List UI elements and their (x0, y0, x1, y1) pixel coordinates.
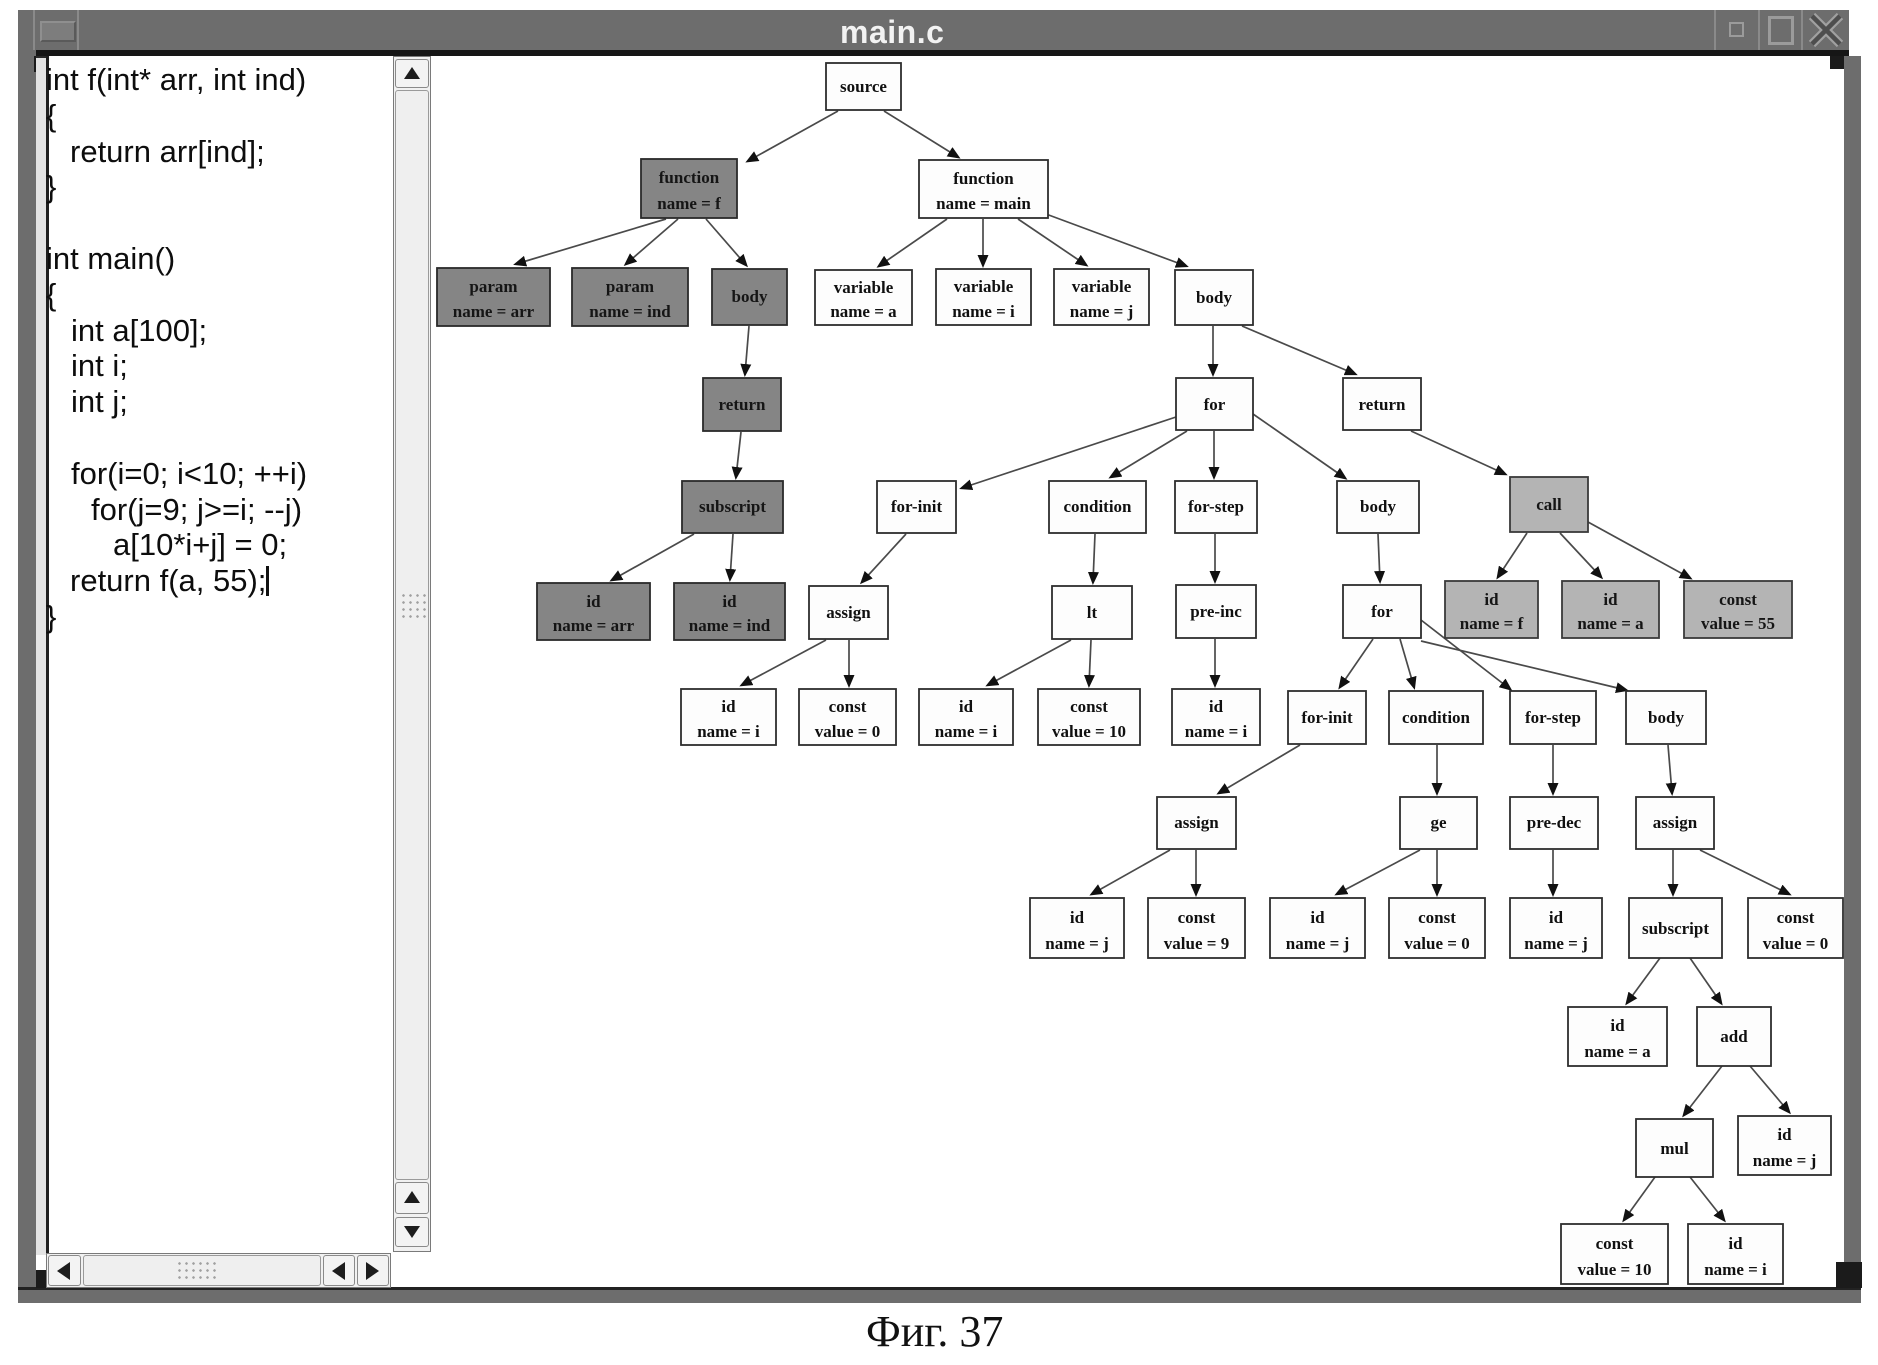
svg-text:id: id (1728, 1234, 1743, 1253)
svg-text:id: id (1484, 590, 1499, 609)
svg-text:id: id (721, 697, 736, 716)
svg-text:condition: condition (1402, 708, 1471, 727)
svg-text:name = main: name = main (936, 194, 1031, 213)
svg-text:name = i: name = i (952, 302, 1015, 321)
svg-text:const: const (1178, 908, 1216, 927)
svg-text:const: const (1719, 590, 1757, 609)
svg-text:value = 0: value = 0 (1763, 934, 1828, 953)
svg-text:const: const (1777, 908, 1815, 927)
svg-text:add: add (1720, 1027, 1748, 1046)
svg-text:name = ind: name = ind (589, 302, 671, 321)
svg-text:name = i: name = i (697, 722, 760, 741)
svg-text:name = j: name = j (1524, 934, 1588, 953)
svg-text:body: body (1648, 708, 1684, 727)
svg-text:id: id (959, 697, 974, 716)
svg-text:body: body (732, 287, 768, 306)
svg-text:name = a: name = a (830, 302, 897, 321)
svg-text:name = i: name = i (1704, 1260, 1767, 1279)
svg-text:id: id (1310, 908, 1325, 927)
svg-text:variable: variable (954, 277, 1014, 296)
svg-text:name = j: name = j (1286, 934, 1350, 953)
svg-text:value = 0: value = 0 (815, 722, 880, 741)
svg-text:const: const (1418, 908, 1456, 927)
svg-text:id: id (1603, 590, 1618, 609)
svg-text:for-step: for-step (1188, 497, 1244, 516)
svg-text:mul: mul (1660, 1139, 1689, 1158)
svg-text:name = ind: name = ind (689, 616, 771, 635)
svg-text:pre-dec: pre-dec (1527, 813, 1582, 832)
svg-text:id: id (722, 592, 737, 611)
svg-text:id: id (1549, 908, 1564, 927)
svg-text:name = arr: name = arr (453, 302, 535, 321)
svg-text:const: const (1596, 1234, 1634, 1253)
svg-text:const: const (829, 697, 867, 716)
svg-text:for-init: for-init (1301, 708, 1353, 727)
svg-text:for: for (1204, 395, 1226, 414)
svg-text:name = a: name = a (1584, 1042, 1651, 1061)
svg-text:value = 9: value = 9 (1164, 934, 1229, 953)
svg-text:pre-inc: pre-inc (1190, 602, 1242, 621)
svg-text:return: return (1359, 395, 1406, 414)
svg-text:for: for (1371, 602, 1393, 621)
svg-text:assign: assign (1174, 813, 1219, 832)
svg-text:subscript: subscript (1642, 919, 1709, 938)
svg-text:for-init: for-init (891, 497, 943, 516)
svg-text:function: function (659, 168, 720, 187)
svg-text:name = j: name = j (1045, 934, 1109, 953)
svg-text:source: source (840, 77, 887, 96)
svg-text:const: const (1070, 697, 1108, 716)
svg-text:id: id (586, 592, 601, 611)
svg-text:function: function (953, 169, 1014, 188)
svg-text:assign: assign (826, 603, 871, 622)
svg-text:return: return (719, 395, 766, 414)
svg-text:value = 55: value = 55 (1701, 614, 1775, 633)
svg-text:condition: condition (1063, 497, 1132, 516)
svg-text:value = 10: value = 10 (1052, 722, 1126, 741)
svg-text:name = i: name = i (1185, 722, 1248, 741)
svg-text:param: param (469, 277, 517, 296)
svg-text:id: id (1777, 1125, 1792, 1144)
svg-text:name = f: name = f (657, 194, 721, 213)
svg-text:variable: variable (834, 278, 894, 297)
svg-text:ge: ge (1430, 813, 1447, 832)
svg-text:body: body (1360, 497, 1396, 516)
svg-text:body: body (1196, 288, 1232, 307)
svg-text:id: id (1070, 908, 1085, 927)
svg-text:name = j: name = j (1753, 1151, 1817, 1170)
svg-text:name = a: name = a (1577, 614, 1644, 633)
svg-text:name = arr: name = arr (553, 616, 635, 635)
svg-text:id: id (1610, 1016, 1625, 1035)
svg-text:value = 10: value = 10 (1578, 1260, 1652, 1279)
svg-text:for-step: for-step (1525, 708, 1581, 727)
svg-text:name = f: name = f (1460, 614, 1524, 633)
svg-text:call: call (1536, 495, 1562, 514)
svg-text:name = i: name = i (935, 722, 998, 741)
svg-text:param: param (606, 277, 654, 296)
svg-text:value = 0: value = 0 (1404, 934, 1469, 953)
svg-text:assign: assign (1653, 813, 1698, 832)
svg-text:variable: variable (1072, 277, 1132, 296)
svg-text:lt: lt (1087, 603, 1098, 622)
svg-text:subscript: subscript (699, 497, 766, 516)
svg-text:id: id (1209, 697, 1224, 716)
svg-text:name = j: name = j (1070, 302, 1134, 321)
